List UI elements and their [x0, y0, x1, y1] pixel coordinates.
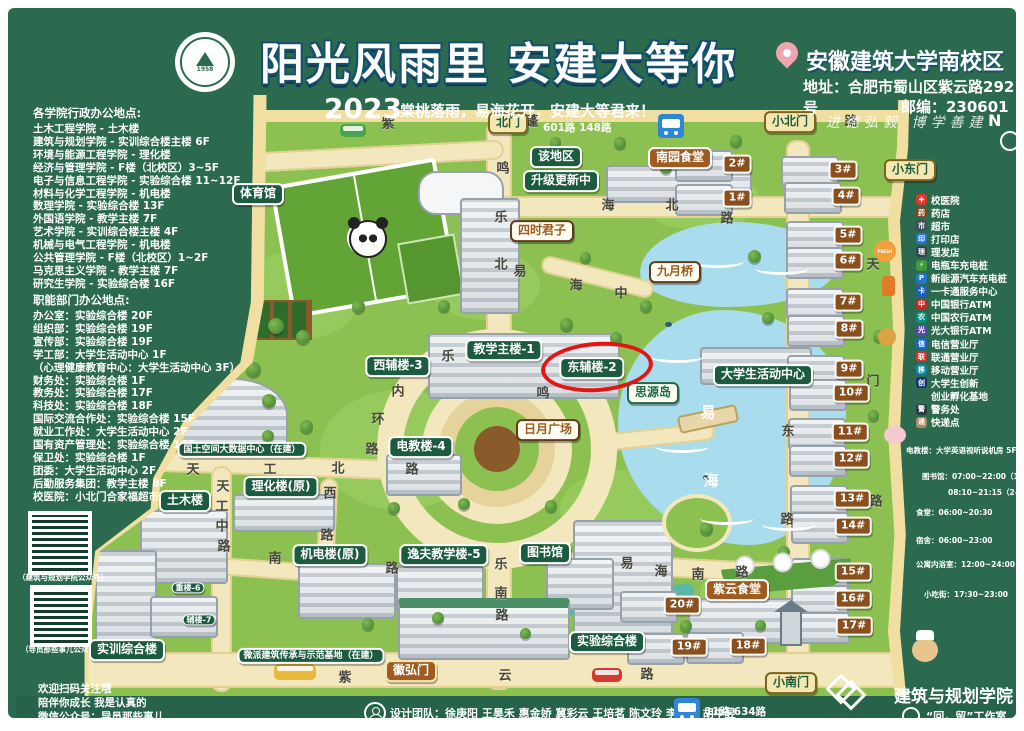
- road-name-char: 中: [614, 283, 627, 302]
- map-label-教学主楼-1: 教学主楼-1: [465, 339, 542, 361]
- qr-code-counselor: [30, 585, 92, 647]
- boat-mascot: [772, 551, 794, 573]
- seal-inner: 1958: [180, 37, 230, 87]
- map-label-国土空间大数据中心（在建）: 国土空间大数据中心（在建）: [177, 442, 306, 458]
- designer-icon: [364, 702, 386, 718]
- legend-label: 新能源汽车充电桩: [931, 271, 1007, 285]
- legend-item: 农中国农行ATM: [916, 311, 1007, 324]
- road-name-char: 路: [217, 536, 230, 555]
- legend-item: 药药店: [916, 206, 1007, 219]
- legend-icon-中国农行ATM: 农: [916, 312, 927, 323]
- college-offices-title: 各学院行政办公地点:: [33, 105, 241, 121]
- map-label-18#: 18#: [730, 637, 767, 656]
- hours-line: 小吃街：17:30~23:00: [924, 589, 1008, 600]
- legend-label: 理发店: [931, 245, 960, 259]
- tree: [432, 612, 444, 624]
- legend-icon-联通营业厅: 联: [916, 351, 927, 362]
- map-label-日月广场: 日月广场: [516, 419, 580, 441]
- campus-map-poster: 1958 阳光风雨里 安建大等你 2023 棠桃落雨，易海花开，安建大等君来！ …: [0, 0, 1024, 731]
- tree: [762, 312, 774, 324]
- lake-name-char: 海: [703, 470, 718, 491]
- legend-label: 校医院: [931, 193, 960, 207]
- college-office-row: 艺术学院 - 实训综合楼主楼 4F: [33, 226, 241, 239]
- green-car: [340, 124, 366, 137]
- map-label-8#: 8#: [835, 320, 864, 339]
- road-name-char: 易: [513, 261, 526, 280]
- fresh-pie-icon: FRESH: [874, 240, 896, 262]
- department-office-row: 科技处：实验综合楼 18F: [33, 400, 240, 413]
- legend-label: 大学生创新: [931, 376, 979, 390]
- tree: [520, 628, 531, 639]
- legend-label: 光大银行ATM: [931, 323, 992, 337]
- legend-icon-打印店: 印: [916, 233, 927, 244]
- department-office-row: （心理健康教育中心：大学生活动中心 3F）: [33, 362, 240, 375]
- road-name-char: 鸣: [536, 383, 549, 402]
- map-label-19#: 19#: [671, 638, 708, 657]
- studio-logo-icon: [902, 707, 920, 718]
- hours-line: 公寓内浴室：12:00~24:00: [916, 559, 1015, 570]
- map-label-大学生活动中心: 大学生活动中心: [713, 364, 813, 386]
- map-label-11#: 11#: [832, 423, 869, 442]
- legend-icon-校医院: ✚: [916, 194, 927, 205]
- legend-icon-大学生创新: 创: [916, 377, 927, 388]
- hours-line: 图书馆：07:00~22:00（1F）: [922, 471, 1016, 482]
- legend-icon-一卡通服务中心: 卡: [916, 286, 927, 297]
- legend-label: 药店: [931, 206, 950, 220]
- university-seal: 1958: [175, 32, 235, 92]
- legend-item: 信电信营业厅: [916, 337, 1007, 350]
- map-label-15#: 15#: [835, 563, 872, 582]
- qr-note-line1: 欢迎扫码关注哦: [38, 681, 112, 696]
- map-label-20#: 20#: [664, 596, 701, 615]
- school-motto: 进德弘毅 博学善建: [826, 112, 987, 132]
- poster-background: 1958 阳光风雨里 安建大等你 2023 棠桃落雨，易海花开，安建大等君来！ …: [8, 8, 1016, 718]
- road-name-char: 路: [495, 605, 508, 624]
- road-name-char: 北: [494, 254, 507, 273]
- tree: [755, 620, 766, 631]
- qr-note-line2: 陪伴你成长 我是认真的: [38, 695, 147, 710]
- road-name-char: 路: [735, 562, 748, 581]
- map-label-四时君子: 四时君子: [510, 220, 574, 242]
- department-office-row: 学工部：大学生活动中心 1F: [33, 349, 240, 362]
- building: [298, 563, 396, 619]
- road-name-char: 路: [385, 558, 398, 577]
- tree: [868, 410, 879, 421]
- tree: [545, 500, 557, 512]
- bus-stop-south-icon: [674, 698, 700, 718]
- qr-caption-college: （建筑与规划学院公众号）: [18, 572, 108, 583]
- road-name-char: 乐: [441, 346, 454, 365]
- tree: [730, 135, 742, 147]
- legend-item: 印打印店: [916, 232, 1007, 245]
- compass-n-label: N: [988, 111, 1001, 130]
- pig-mascot-icon: [884, 426, 906, 444]
- legend-item: 卡一卡通服务中心: [916, 285, 1007, 298]
- juice-icon: [882, 276, 895, 296]
- tree: [262, 430, 274, 442]
- department-office-row: 财务处：实验综合楼 1F: [33, 375, 240, 388]
- map-label-5#: 5#: [834, 226, 863, 245]
- legend: ✚校医院药药店市超市印打印店理理发店⚡电瓶车充电桩P新能源汽车充电桩卡一卡通服务…: [916, 193, 1007, 429]
- tree: [362, 618, 374, 630]
- hours-line: 电教楼：大学英语视听说机房 5F: [906, 445, 1016, 456]
- tree: [300, 420, 313, 433]
- legend-label: 中国农行ATM: [931, 310, 992, 324]
- legend-item: 移移动营业厅: [916, 363, 1007, 376]
- map-label-实验综合楼: 实验综合楼: [569, 631, 645, 653]
- legend-item: 创业孵化基地: [916, 389, 1007, 402]
- legend-item: 光光大银行ATM: [916, 324, 1007, 337]
- poster-year: 2023: [324, 92, 402, 125]
- college-name: 建筑与规划学院: [894, 682, 1013, 707]
- tree: [296, 330, 310, 344]
- legend-label: 超市: [931, 219, 950, 233]
- map-label-小东门: 小东门: [884, 159, 936, 181]
- road-name-char: 路: [869, 491, 882, 510]
- legend-label: 电信营业厅: [931, 337, 979, 351]
- department-office-row: 就业工作处：大学生活动中心 2F: [33, 426, 240, 439]
- road-name-char: 南: [268, 548, 281, 567]
- legend-label: 移动营业厅: [931, 363, 979, 377]
- road-name-char: 南: [494, 583, 507, 602]
- legend-item: ✚校医院: [916, 193, 1007, 206]
- lake-pagoda: [780, 610, 802, 646]
- road-name-char: 易: [620, 553, 633, 572]
- map-label-1#: 1#: [723, 189, 752, 208]
- road-name-char: 环: [371, 409, 384, 428]
- map-label-徽弘门: 徽弘门: [385, 660, 437, 682]
- tree: [388, 502, 400, 514]
- poster-title: 阳光风雨里 安建大等你: [260, 28, 737, 92]
- basketball-court: [397, 233, 465, 304]
- road-name-char: 中: [215, 516, 228, 535]
- road-name-char: 路: [405, 459, 418, 478]
- map-label-16#: 16#: [835, 590, 872, 609]
- road-name-char: 路: [720, 208, 733, 227]
- legend-label: 警务处: [931, 402, 960, 416]
- map-label-南园食堂: 南园食堂: [648, 147, 712, 169]
- legend-item: 警警务处: [916, 403, 1007, 416]
- map-label-土木楼: 土木楼: [159, 490, 211, 512]
- map-label-4#: 4#: [832, 187, 861, 206]
- college-office-row: 材料与化学工程学院 - 机电楼: [33, 188, 241, 201]
- tree: [700, 522, 713, 535]
- legend-label: 一卡通服务中心: [931, 284, 998, 298]
- department-office-row: 教务处：实验综合楼 17F: [33, 387, 240, 400]
- tree: [748, 250, 761, 263]
- tree: [560, 318, 573, 331]
- tree: [268, 318, 284, 334]
- red-car: [592, 668, 622, 682]
- college-office-row: 公共管理学院 - F楼（北校区）1~2F: [33, 252, 241, 265]
- road-name-char: 海: [601, 195, 614, 214]
- map-label-西辅楼-3: 西辅楼-3: [365, 355, 430, 377]
- lake-wave: [755, 262, 809, 275]
- map-label-逸夫教学楼-5: 逸夫教学楼-5: [399, 544, 488, 566]
- legend-item: 市超市: [916, 219, 1007, 232]
- college-office-row: 机械与电气工程学院 - 机电楼: [33, 239, 241, 252]
- road-name-char: 路: [780, 509, 793, 528]
- map-label-小南门: 小南门: [765, 672, 817, 694]
- road-name-char: 工: [263, 459, 276, 478]
- map-label-14#: 14#: [835, 517, 872, 536]
- map-label-7#: 7#: [834, 293, 863, 312]
- department-offices-title: 职能部门办公地点:: [33, 292, 240, 308]
- map-label-理化楼(原): 理化楼(原): [244, 476, 319, 498]
- college-office-row: 数理学院 - 实验综合楼 13F: [33, 200, 241, 213]
- map-label-2#: 2#: [723, 155, 752, 174]
- map-label-3#: 3#: [829, 161, 858, 180]
- building: [398, 598, 570, 660]
- boat-mascot: [810, 548, 832, 570]
- legend-item: 联联通营业厅: [916, 350, 1007, 363]
- legend-icon-快递点: 递: [916, 417, 927, 428]
- school-bus: [274, 664, 316, 680]
- studio-name: “回，留”工作室: [926, 708, 1006, 718]
- tree: [262, 394, 276, 408]
- legend-icon-电瓶车充电桩: ⚡: [916, 260, 927, 271]
- road-name-char: 北: [331, 458, 344, 477]
- chef-bear-icon: [912, 638, 938, 662]
- road-name-char: 海: [569, 275, 582, 294]
- map-label-紫云食堂: 紫云食堂: [705, 579, 769, 601]
- map-label-机电楼(原): 机电楼(原): [293, 544, 368, 566]
- legend-icon-新能源汽车充电桩: P: [916, 273, 927, 284]
- road: [540, 254, 656, 299]
- college-office-row: 电子与信息工程学院 - 实验综合楼 11~12F: [33, 175, 241, 188]
- tree: [614, 137, 626, 149]
- road-name-char: 云: [498, 665, 511, 684]
- legend-icon-中国银行ATM: 中: [916, 299, 927, 310]
- legend-label: 联通营业厅: [931, 350, 979, 364]
- map-label-6#: 6#: [834, 252, 863, 271]
- bus-stop-north-icon: [658, 114, 684, 138]
- road-name-char: 鸣: [496, 158, 509, 177]
- bus-routes-south: 11路 634路: [705, 704, 766, 718]
- legend-icon-药店: 药: [916, 207, 927, 218]
- tree: [438, 300, 450, 312]
- college-office-row: 环境与能源工程学院 - 理化楼: [33, 149, 241, 162]
- road-name-char: 路: [365, 439, 378, 458]
- legend-item: 递快递点: [916, 416, 1007, 429]
- road-name-char: 路: [320, 525, 333, 544]
- road-name-char: 西: [323, 483, 336, 502]
- legend-icon-警务处: 警: [916, 404, 927, 415]
- legend-icon-电信营业厅: 信: [916, 338, 927, 349]
- building: [95, 550, 157, 648]
- college-office-row: 土木工程学院 - 土木楼: [33, 123, 241, 136]
- seal-year: 1958: [197, 66, 214, 73]
- panda-mascot: [349, 220, 387, 258]
- seal-building-icon: [196, 52, 214, 66]
- map-label-实训综合楼: 实训综合楼: [89, 639, 165, 661]
- legend-icon-理发店: 理: [916, 246, 927, 257]
- tree: [640, 300, 652, 312]
- legend-icon-光大银行ATM: 光: [916, 325, 927, 336]
- map-label-9#: 9#: [835, 360, 864, 379]
- map-label-辅楼-7: 辅楼-7: [183, 614, 216, 625]
- map-label-电教楼-4: 电教楼-4: [388, 436, 453, 458]
- road-name-char: 东: [781, 421, 794, 440]
- lake-wave: [655, 440, 709, 453]
- map-label-思源岛: 思源岛: [627, 382, 679, 404]
- road-name-char: 紫: [338, 667, 351, 686]
- road-name-char: 乐: [494, 207, 507, 226]
- road-name-char: 北: [665, 195, 678, 214]
- college-office-row: 经济与管理学院 - F楼（北校区）3~5F: [33, 162, 241, 175]
- map-label-图书馆: 图书馆: [519, 542, 571, 564]
- department-office-row: 后勤服务集团：教学主楼 8F: [33, 478, 240, 491]
- noodle-bowl-icon: [878, 328, 896, 346]
- legend-label: 快递点: [931, 415, 960, 429]
- department-office-row: 国际交流合作处：实验综合楼 15F: [33, 413, 240, 426]
- tree: [352, 300, 365, 313]
- legend-label: 创业孵化基地: [931, 389, 988, 403]
- road-name-char: 路: [640, 664, 653, 683]
- sun-moon-plaza-circle: [474, 426, 520, 472]
- legend-label: 电瓶车充电桩: [931, 258, 988, 272]
- tree: [458, 498, 470, 510]
- map-label-13#: 13#: [834, 490, 871, 509]
- lake-name-char: 易: [700, 402, 715, 423]
- college-office-row: 研究生学院 - 实验综合楼 16F: [33, 278, 241, 291]
- qr-note-line3: 微信公众号：导员那些事儿: [38, 709, 164, 718]
- map-label-12#: 12#: [833, 450, 870, 469]
- college-office-row: 建筑与规划学院 - 实训综合楼主楼 6F: [33, 136, 241, 149]
- building: [460, 198, 520, 314]
- legend-icon-移动营业厅: 移: [916, 364, 927, 375]
- building: [386, 454, 462, 496]
- map-label-重楼-6: 重楼-6: [172, 582, 205, 593]
- bus-routes-north: 601路 148路: [543, 120, 612, 135]
- road-name-char: 内: [391, 381, 404, 400]
- lake-wave: [700, 512, 754, 525]
- tree: [580, 252, 591, 263]
- map-label-10#: 10#: [833, 384, 870, 403]
- legend-item: 创大学生创新: [916, 376, 1007, 389]
- department-office-row: 团委：大学生活动中心 2F: [33, 465, 240, 478]
- qr-code-college: [28, 511, 92, 575]
- hours-line: 食堂：06:00~20:30: [916, 507, 993, 518]
- compass-icon: [1000, 131, 1016, 151]
- college-office-row: 马克思主义学院 - 教学主楼 7F: [33, 265, 241, 278]
- department-office-row: 组织部：实验综合楼 19F: [33, 323, 240, 336]
- location-pin-icon: [771, 37, 802, 68]
- map-label-该地区: 该地区: [530, 146, 582, 168]
- map-label-微派建筑传承与示范基地（在建）: 微派建筑传承与示范基地（在建）: [237, 648, 384, 664]
- college-office-row: 外国语学院 - 教学主楼 7F: [33, 213, 241, 226]
- road-name-char: 海: [654, 561, 667, 580]
- map-label-升级更新中: 升级更新中: [523, 170, 599, 192]
- map-label-体育馆: 体育馆: [232, 183, 284, 205]
- department-office-row: 宣传部：实验综合楼 19F: [33, 336, 240, 349]
- campus-name: 安徽建筑大学南校区: [806, 44, 1004, 76]
- road-name-char: 南: [691, 564, 704, 583]
- hours-line: 08:10~21:15（2-5F）: [948, 487, 1016, 498]
- legend-item: P新能源汽车充电桩: [916, 272, 1007, 285]
- legend-item: ⚡电瓶车充电桩: [916, 258, 1007, 271]
- department-offices-list: 职能部门办公地点: 办公室：实验综合楼 20F组织部：实验综合楼 19F宣传部：…: [33, 292, 240, 504]
- college-offices-list: 各学院行政办公地点: 土木工程学院 - 土木楼建筑与规划学院 - 实训综合楼主楼…: [33, 105, 241, 291]
- hours-line: 宿舍：06:00~23:00: [916, 535, 993, 546]
- map-label-九月桥: 九月桥: [649, 261, 701, 283]
- department-office-row: 办公室：实验综合楼 20F: [33, 310, 240, 323]
- poster-subtitle: 棠桃落雨，易海花开，安建大等君来！: [400, 100, 655, 121]
- legend-item: 理理发店: [916, 245, 1007, 258]
- lake-fish: [665, 322, 672, 327]
- legend-label: 中国银行ATM: [931, 297, 992, 311]
- lake-wave: [650, 350, 704, 363]
- legend-label: 打印店: [931, 232, 960, 246]
- chef-hat-icon: [916, 630, 934, 640]
- legend-icon-超市: 市: [916, 220, 927, 231]
- college-logo-icon: [830, 678, 860, 708]
- road-name-char: 乐: [494, 554, 507, 573]
- map-label-17#: 17#: [836, 617, 873, 636]
- tree: [680, 620, 692, 632]
- legend-item: 中中国银行ATM: [916, 298, 1007, 311]
